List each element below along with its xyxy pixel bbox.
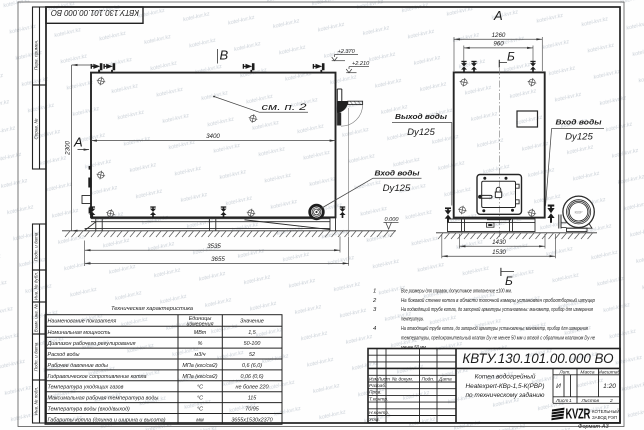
svg-text:Пров.: Пров. — [369, 390, 382, 396]
svg-text:№ докум.: № докум. — [392, 376, 413, 382]
svg-text:3535: 3535 — [207, 243, 221, 250]
svg-text:Вход воды: Вход воды — [556, 117, 603, 126]
svg-text:Dy125: Dy125 — [407, 127, 435, 138]
svg-text:Дата: Дата — [438, 376, 452, 382]
svg-text:Лист: Лист — [555, 398, 568, 404]
svg-text:КВТУ.130.101.00.000 ВО: КВТУ.130.101.00.000 ВО — [462, 351, 614, 366]
svg-text:Значение: Значение — [240, 319, 264, 325]
svg-text:1530: 1530 — [492, 249, 506, 256]
svg-text:Температура уходящих газов: Температура уходящих газов — [48, 385, 124, 391]
svg-text:°С: °С — [197, 396, 203, 402]
svg-text:2: 2 — [372, 298, 377, 304]
svg-text:Диапазон рабочего регулировани: Диапазон рабочего регулирования — [47, 341, 136, 347]
svg-text:А: А — [73, 135, 83, 150]
svg-text:0,06 (0,6): 0,06 (0,6) — [240, 374, 263, 380]
svg-text:+2.370: +2.370 — [338, 49, 356, 55]
svg-text:Перв. примен.: Перв. примен. — [34, 40, 39, 71]
svg-text:960: 960 — [493, 41, 504, 48]
svg-text:%: % — [198, 341, 203, 347]
svg-text:Разраб.: Разраб. — [369, 383, 386, 389]
svg-text:мм: мм — [196, 417, 204, 423]
svg-text:1:20: 1:20 — [603, 383, 616, 390]
svg-text:Н.контр.: Н.контр. — [369, 410, 389, 416]
svg-text:Все размеры для справок, допус: Все размеры для справок, допустимое откл… — [401, 288, 512, 294]
svg-text:КВЗР: КВЗР — [575, 211, 583, 215]
svg-text:по техническому заданию: по техническому заданию — [466, 391, 545, 399]
svg-text:1,5: 1,5 — [248, 330, 256, 336]
svg-text:Масса: Масса — [580, 369, 595, 375]
svg-text:На отводящей трубе котла ,до з: На отводящей трубе котла ,до запорной ар… — [401, 325, 589, 332]
svg-text:KVZR: KVZR — [566, 406, 591, 423]
svg-text:70/95: 70/95 — [245, 407, 259, 413]
svg-text:3655х1530х2370: 3655х1530х2370 — [231, 417, 272, 423]
svg-text:Номинальная мощность: Номинальная мощность — [48, 330, 111, 336]
svg-text:Вход воды: Вход воды — [375, 169, 421, 178]
svg-text:Подп. и дата: Подп. и дата — [34, 342, 39, 371]
svg-text:Максимальная рабочая температу: Максимальная рабочая температура воды — [48, 396, 159, 402]
svg-text:Dy125: Dy125 — [383, 183, 411, 194]
svg-text:Лист: Лист — [377, 376, 390, 382]
svg-text:измерения: измерения — [187, 322, 214, 328]
svg-text:Листов: Листов — [581, 398, 600, 404]
svg-text:температуры.: температуры. — [401, 317, 424, 323]
svg-text:115: 115 — [248, 396, 258, 402]
svg-text:Справ. №: Справ. № — [34, 119, 39, 140]
svg-text:Инв. № дубл.: Инв. № дубл. — [34, 272, 39, 300]
svg-text:2: 2 — [609, 398, 613, 404]
svg-text:Техническая характеристика: Техническая характеристика — [111, 306, 194, 312]
svg-text:МВт: МВт — [194, 330, 207, 336]
svg-text:1430: 1430 — [492, 239, 506, 246]
svg-text:Температура воды (вход/выход): Температура воды (вход/выход) — [48, 407, 131, 413]
svg-text:В: В — [220, 48, 229, 63]
svg-text:1: 1 — [569, 398, 572, 404]
svg-text:не более 220: не более 220 — [236, 385, 269, 391]
svg-text:Лит.: Лит. — [558, 369, 570, 375]
svg-text:°С: °С — [197, 385, 203, 391]
svg-text:Подп. и дата: Подп. и дата — [34, 232, 39, 261]
svg-text:см. п. 2: см. п. 2 — [262, 102, 307, 112]
svg-text:50-100: 50-100 — [244, 341, 261, 347]
svg-text:КОТЕЛЬНЫЙ: КОТЕЛЬНЫЙ — [592, 409, 620, 414]
svg-text:Dy125: Dy125 — [565, 132, 593, 143]
svg-text:м3/ч: м3/ч — [195, 352, 206, 358]
svg-text:Расход воды: Расход воды — [48, 352, 80, 358]
svg-text:52: 52 — [249, 352, 255, 358]
svg-text:МПа (кгс/см2): МПа (кгс/см2) — [182, 363, 217, 369]
svg-text:Наименование показателя: Наименование показателя — [48, 319, 117, 325]
svg-text:Утв.: Утв. — [369, 417, 380, 423]
svg-text:КВТУ.130.101.00.000 ВО: КВТУ.130.101.00.000 ВО — [51, 8, 139, 18]
svg-text:температуры, предохранительный: температуры, предохранительный клапан Dу… — [401, 334, 595, 341]
svg-text:МПа (кгс/см2): МПа (кгс/см2) — [182, 374, 217, 380]
svg-text:А: А — [493, 8, 503, 23]
svg-text:Heatexpert-КВр-1,5-К(РВР): Heatexpert-КВр-1,5-К(РВР) — [466, 383, 545, 390]
svg-text:3655: 3655 — [211, 256, 225, 263]
svg-text:Взам. инв. №: Взам. инв. № — [34, 304, 39, 332]
svg-text:Рабочее давление воды: Рабочее давление воды — [48, 363, 108, 369]
svg-text:ЗАВОД РЭП: ЗАВОД РЭП — [592, 415, 617, 420]
svg-text:3400: 3400 — [206, 133, 220, 140]
svg-text:И: И — [556, 383, 561, 390]
svg-text:+2.210: +2.210 — [352, 61, 370, 67]
svg-text:0,6 (6,0): 0,6 (6,0) — [242, 363, 262, 369]
svg-text:1260: 1260 — [492, 32, 506, 39]
svg-text:1: 1 — [373, 288, 376, 294]
svg-text:Выход воды: Выход воды — [395, 112, 448, 121]
svg-text:2300: 2300 — [65, 141, 72, 156]
svg-text:Б: Б — [507, 50, 515, 64]
svg-text:°С: °С — [197, 407, 203, 413]
svg-text:На боковой стенке котла в обла: На боковой стенке котла в области топочн… — [401, 297, 596, 304]
svg-text:Инв. № подл.: Инв. № подл. — [34, 387, 39, 416]
svg-text:Гидравлическое сопротивление к: Гидравлическое сопротивление котла — [48, 374, 147, 380]
svg-text:На подводящий трубе котла, д: На подводящий трубе котла, до запорной а… — [401, 306, 594, 313]
svg-text:Котел водогрейный: Котел водогрейный — [475, 372, 536, 380]
svg-text:Габариты котла (длинна и ширин: Габариты котла (длинна и ширина и высота… — [48, 417, 166, 423]
svg-text:Т.контр.: Т.контр. — [369, 396, 388, 402]
svg-text:Формат А3: Формат А3 — [578, 424, 609, 430]
svg-text:Масштаб: Масштаб — [598, 369, 621, 375]
svg-text:Подп.: Подп. — [422, 376, 435, 382]
svg-text:Б: Б — [505, 274, 513, 288]
